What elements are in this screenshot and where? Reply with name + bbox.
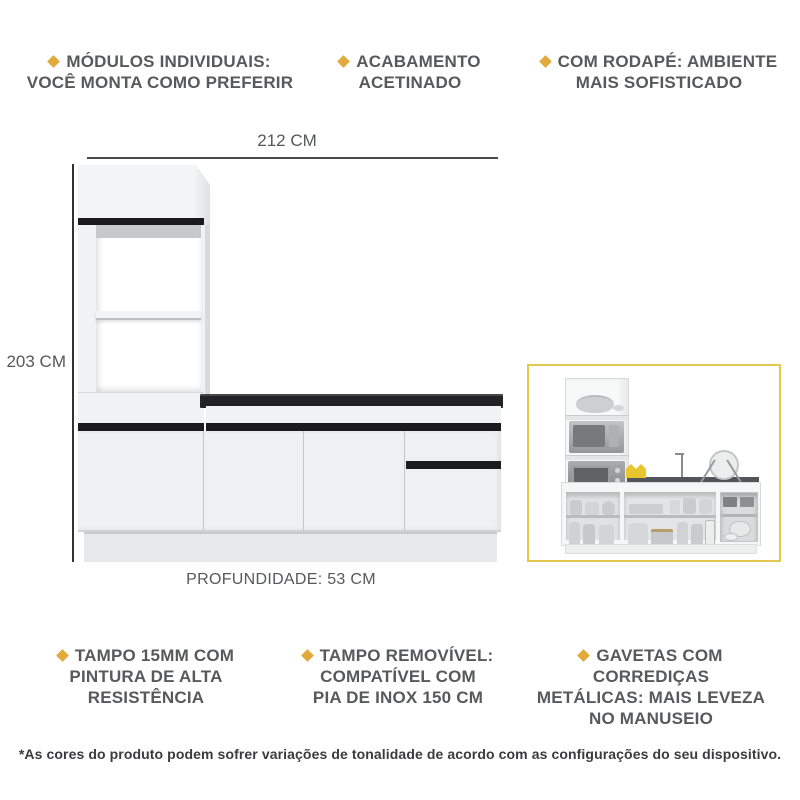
feature-text: COMPATÍVEL COM — [285, 666, 511, 687]
cup-icon — [724, 533, 738, 541]
jar-icon — [683, 498, 696, 514]
photo-tower — [565, 378, 629, 499]
feature-tampo-15mm: TAMPO 15MM COM PINTURA DE ALTA RESISTÊNC… — [16, 645, 276, 708]
feature-line: MÓDULOS INDIVIDUAIS: — [10, 51, 310, 72]
door-separator — [404, 431, 405, 530]
bowl-icon — [576, 395, 614, 413]
faucet-spout — [675, 453, 684, 455]
product-photo-inset — [527, 364, 781, 562]
jar-icon — [570, 500, 582, 515]
diamond-bullet-icon — [337, 55, 350, 68]
feature-gavetas: GAVETAS COM CORREDIÇAS METÁLICAS: MAIS L… — [522, 645, 780, 729]
depth-dimension-label: PROFUNDIDADE: 53 CM — [156, 571, 406, 589]
height-dimension-line — [72, 164, 74, 562]
microwave-icon — [569, 421, 624, 453]
microwave-door — [573, 425, 605, 447]
jar-icon — [602, 501, 615, 515]
open-section — [566, 492, 620, 540]
feature-line: TAMPO 15MM COM — [16, 645, 276, 666]
feature-text: MAIS SOFISTICADO — [528, 72, 790, 93]
base-drawer-band — [206, 406, 501, 423]
oven-knob — [615, 468, 620, 473]
feature-line: ACABAMENTO — [312, 51, 508, 72]
basket-icon — [740, 497, 754, 507]
faucet-icon — [681, 453, 683, 477]
feature-text: RESISTÊNCIA — [16, 687, 276, 708]
feature-text: ACABAMENTO — [356, 52, 480, 71]
open-section — [624, 492, 716, 540]
microwave-panel — [609, 425, 619, 447]
drawer-handle-strip — [406, 461, 501, 469]
tower-drawer-band — [78, 392, 204, 424]
feature-rodape: COM RODAPÉ: AMBIENTE MAIS SOFISTICADO — [528, 51, 790, 93]
feature-line: TAMPO REMOVÍVEL: — [285, 645, 511, 666]
small-bowl-icon — [613, 405, 624, 411]
open-section — [720, 492, 758, 542]
middle-shelf — [96, 311, 201, 320]
tower-side-panel — [205, 225, 210, 395]
feature-text: ACETINADO — [312, 72, 508, 93]
feature-text: GAVETAS COM CORREDIÇAS — [593, 646, 723, 686]
photo-plinth — [565, 544, 757, 554]
feature-text: NO MANUSEIO — [522, 708, 780, 729]
feature-text: TAMPO REMOVÍVEL: — [320, 646, 494, 665]
feature-modulos-individuais: MÓDULOS INDIVIDUAIS: VOCÊ MONTA COMO PRE… — [10, 51, 310, 93]
diamond-bullet-icon — [56, 649, 69, 662]
feature-text: TAMPO 15MM COM — [75, 646, 234, 665]
basket-icon — [723, 497, 737, 507]
photo-base-cabinet — [561, 482, 761, 546]
feature-text: PINTURA DE ALTA — [16, 666, 276, 687]
feature-text: MÓDULOS INDIVIDUAIS: — [66, 52, 270, 71]
width-dimension-label: 212 CM — [237, 131, 337, 151]
width-dimension-line — [87, 157, 498, 159]
yellow-towel-icon — [626, 464, 646, 478]
tray-icon — [629, 504, 663, 514]
countertop — [200, 394, 503, 408]
photo-shelf-line — [624, 515, 716, 518]
feature-acabamento: ACABAMENTO ACETINADO — [312, 51, 508, 93]
feature-tampo-removivel: TAMPO REMOVÍVEL: COMPATÍVEL COM PIA DE I… — [285, 645, 511, 708]
photo-shelf-line — [566, 455, 628, 460]
feature-text: COM RODAPÉ: AMBIENTE — [558, 52, 778, 71]
tower-base-handle — [78, 423, 204, 431]
tower-open-niche — [96, 225, 201, 392]
tower-top-cabinet — [78, 165, 210, 225]
feature-text: VOCÊ MONTA COMO PREFERIR — [10, 72, 310, 93]
tower-top-cabinet-handle — [78, 218, 204, 225]
door-separator — [203, 431, 204, 530]
base-handle-strip — [206, 423, 501, 431]
diamond-bullet-icon — [578, 649, 591, 662]
feature-text: PIA DE INOX 150 CM — [285, 687, 511, 708]
photo-shelf-line — [566, 515, 620, 518]
diamond-bullet-icon — [539, 55, 552, 68]
tower-shelf-frame — [78, 225, 205, 392]
jar-icon — [585, 502, 599, 515]
feature-line: COM RODAPÉ: AMBIENTE — [528, 51, 790, 72]
diamond-bullet-icon — [48, 55, 61, 68]
feature-text: METÁLICAS: MAIS LEVEZA — [522, 687, 780, 708]
footer-disclaimer: *As cores do produto podem sofrer variaç… — [0, 746, 800, 762]
door-separator — [303, 431, 304, 530]
jar-icon — [670, 500, 680, 514]
dish-rack-plate-icon — [709, 450, 739, 480]
plinth — [84, 532, 497, 562]
feature-line: GAVETAS COM CORREDIÇAS — [522, 645, 780, 687]
jar-icon — [699, 499, 712, 514]
photo-shelf-line — [566, 415, 628, 420]
base-doors — [78, 431, 501, 532]
height-dimension-label: 203 CM — [4, 352, 66, 372]
photo-shelf-line — [721, 514, 757, 517]
diamond-bullet-icon — [301, 649, 314, 662]
